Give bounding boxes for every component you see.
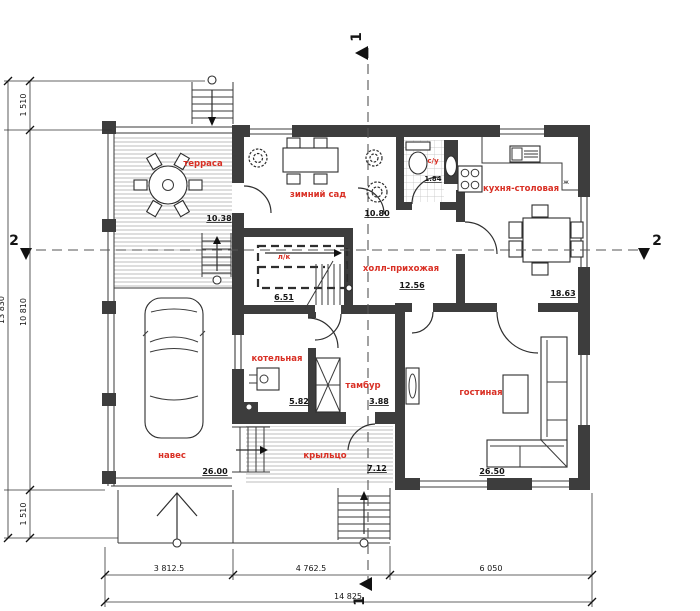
section-2-label-right: 2 [652, 233, 662, 249]
room-area-wc: 1.84 [424, 175, 441, 183]
room-area-hall: 12.56 [399, 281, 425, 290]
room-area-living: 26.50 [479, 467, 505, 476]
tv-icon [406, 368, 419, 404]
room-label-porch: крыльцо [303, 451, 346, 461]
internal-staircase [258, 246, 352, 309]
room-label-stairs: л/к [278, 253, 291, 261]
entry-stair-top [192, 76, 233, 126]
dim-left-top: 1 510 [19, 94, 28, 117]
floor-plan: терраса 10.38 зимний сад 10.80 с/у 1.84 … [0, 0, 700, 611]
section-labels: 1 1 2 2 [9, 32, 662, 606]
dim-bottom-3: 6 050 [480, 564, 503, 573]
section-1-label-top: 1 [349, 32, 365, 42]
section-2-label-left: 2 [9, 233, 19, 249]
coffee-table-icon [503, 375, 528, 413]
room-label-carport: навес [158, 451, 186, 461]
room-label-wc: с/у [427, 157, 439, 165]
room-label-boiler: котельная [252, 354, 303, 364]
room-label-terrace: терраса [183, 159, 223, 169]
room-area-porch: 7.12 [367, 464, 387, 473]
room-area-carport: 26.00 [202, 467, 228, 476]
winter-garden-table [283, 138, 338, 184]
room-area-tambour: 3.88 [369, 397, 389, 406]
entry-stair-bottom [338, 488, 390, 547]
room-label-tambour: тамбур [345, 380, 380, 391]
sink-icon [446, 156, 457, 176]
room-area-stairs: 6.51 [274, 293, 294, 302]
room-label-kitchen: кухня-столовая [483, 184, 559, 194]
room-area-kitchen: 18.63 [550, 289, 575, 298]
chimney-shaft [316, 358, 340, 412]
room-label-winter-garden: зимний сад [290, 190, 346, 200]
dim-bottom-1: 3 812.5 [154, 564, 185, 573]
room-area-boiler: 5.82 [289, 397, 309, 406]
dim-left-total: 13 830 [0, 296, 6, 324]
kitchen-symbol-mark: ж [563, 178, 569, 186]
boiler-icon [240, 368, 279, 412]
dim-bottom-2: 4 762.5 [296, 564, 327, 573]
kitchen-dining-table [509, 205, 583, 275]
room-area-terrace: 10.38 [206, 214, 232, 223]
dim-left-mid: 10 810 [19, 298, 28, 326]
room-area-winter-garden: 10.80 [364, 209, 390, 218]
car-icon [143, 298, 205, 438]
stove-icon [458, 166, 482, 192]
room-label-living: гостиная [459, 388, 502, 398]
dim-bottom-total: 14 825 [334, 592, 362, 601]
room-label-hall: холл-прихожая [363, 264, 439, 274]
dim-left-bottom: 1 510 [19, 503, 28, 526]
